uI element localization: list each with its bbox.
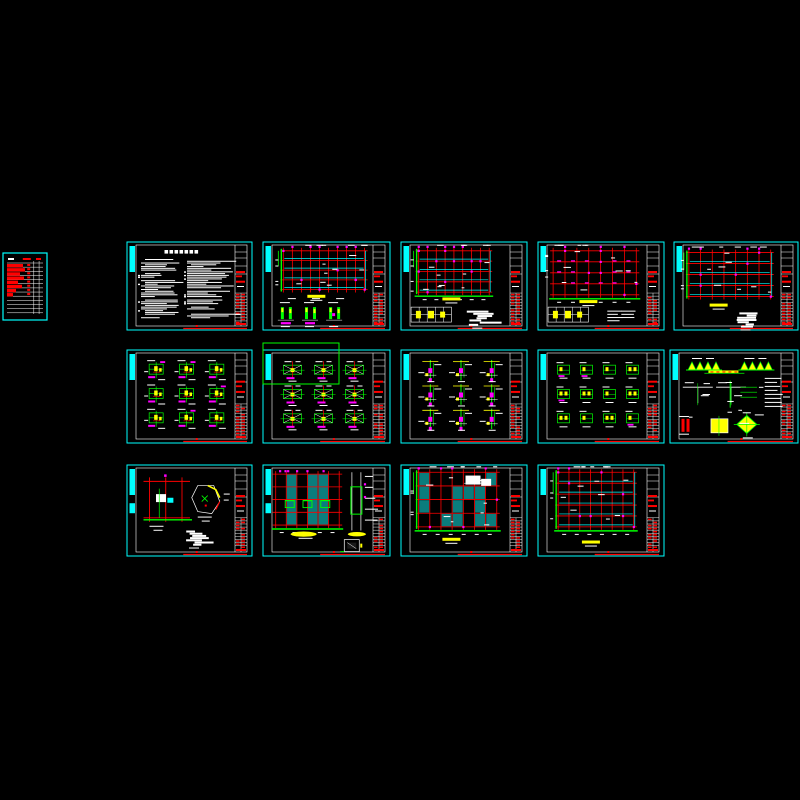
sheet-10-stair-misc-details-sheet[interactable] xyxy=(670,350,798,443)
sheet-1-general-notes-sheet[interactable] xyxy=(127,242,252,330)
sheet-14-slab-plan-3[interactable] xyxy=(538,465,664,556)
sheet-9-member-details-sheet[interactable] xyxy=(538,350,664,443)
selection-box xyxy=(263,343,339,384)
cad-drawing-canvas[interactable] xyxy=(0,0,800,800)
sheet-0-drawing-index-thumbnail[interactable] xyxy=(3,253,47,320)
sheet-11-foundation-details-sheet[interactable] xyxy=(127,465,252,556)
sheet-12-slab-plan-with-section[interactable] xyxy=(263,465,390,556)
sheet-6-joint-details-sheet-1[interactable] xyxy=(127,350,252,443)
sheet-13-slab-plan-2[interactable] xyxy=(401,465,527,556)
sheet-7-joint-details-sheet-2[interactable] xyxy=(263,350,390,443)
sheet-3-framing-plan-2[interactable] xyxy=(401,242,527,330)
sheet-8-column-details-sheet[interactable] xyxy=(401,350,527,443)
sheet-5-framing-plan-4[interactable] xyxy=(674,242,798,330)
cad-viewport[interactable] xyxy=(0,0,800,800)
sheet-2-framing-plan-1[interactable] xyxy=(263,242,390,330)
sheet-4-framing-plan-3[interactable] xyxy=(538,242,664,330)
